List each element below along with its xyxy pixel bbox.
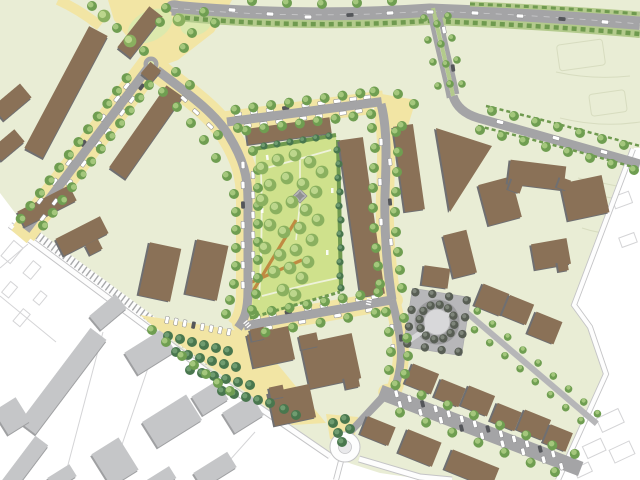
masterplan-map — [0, 0, 640, 480]
circular-plaza — [401, 286, 472, 357]
